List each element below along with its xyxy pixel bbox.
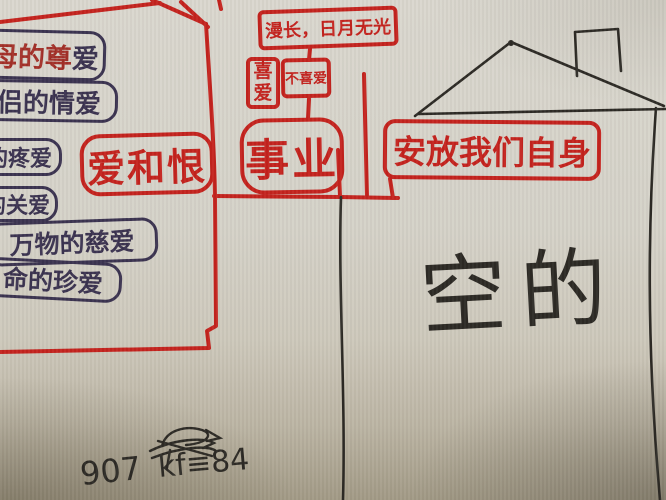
note-907: 907 [78, 449, 143, 493]
node-love-hate-label: 爱和恨 [86, 135, 207, 193]
house-empty-label: 空的 [417, 217, 623, 352]
roof-apex-dot [508, 40, 514, 46]
node-settle-ourselves-box: 安放我们自身 [383, 119, 602, 181]
list-item-3: 的疼爱 [0, 138, 62, 176]
list-item-4: 的关爱 [0, 186, 58, 222]
house-roof [415, 42, 664, 116]
list-item-2: 侣的情爱 [0, 79, 118, 123]
node-dislike-box: 不喜爱 [281, 58, 332, 99]
list-item-4-text: 的关爱 [0, 188, 50, 220]
list-item-6-text: 命的珍爱 [2, 259, 104, 300]
house-empty-text: 空的 [418, 238, 623, 348]
list-item-3-text: 的疼爱 [0, 141, 52, 173]
house-right-wall [650, 108, 660, 500]
note-scrawl: kf≡84 [157, 442, 251, 485]
list-item-5-text: 万物的慈爱 [9, 222, 135, 262]
list-item-2-text: 侣的情爱 [0, 82, 101, 121]
list-item-1: 母的尊爱 [0, 28, 107, 81]
node-dislike-label: 不喜爱 [285, 68, 327, 89]
list-item-6: 命的珍爱 [0, 256, 123, 303]
list-item-1-dark-text: 爱 [71, 36, 99, 76]
note-scrawl-text: kf≡84 [157, 442, 251, 485]
node-long-days-box: 漫长，日月无光 [257, 6, 398, 51]
paper-photo: 母的尊爱 侣的情爱 的疼爱 的关爱 万物的慈爱 命的珍爱 漫长，日月无光 喜爱 … [0, 0, 666, 500]
node-like-label: 喜爱 [250, 61, 276, 105]
node-settle-ourselves-label: 安放我们自身 [393, 125, 591, 175]
node-career-label: 事业 [244, 123, 339, 189]
list-item-1-red-text: 母的尊 [0, 34, 73, 75]
node-like-box: 喜爱 [246, 57, 280, 109]
house-chimney [575, 29, 621, 76]
house-left-wall [340, 197, 343, 500]
house-wall-top [419, 109, 666, 114]
note-907-text: 907 [78, 449, 143, 493]
node-long-days-label: 漫长，日月无光 [265, 13, 392, 43]
node-love-hate-box: 爱和恨 [79, 131, 215, 196]
node-career-box: 事业 [239, 117, 344, 195]
